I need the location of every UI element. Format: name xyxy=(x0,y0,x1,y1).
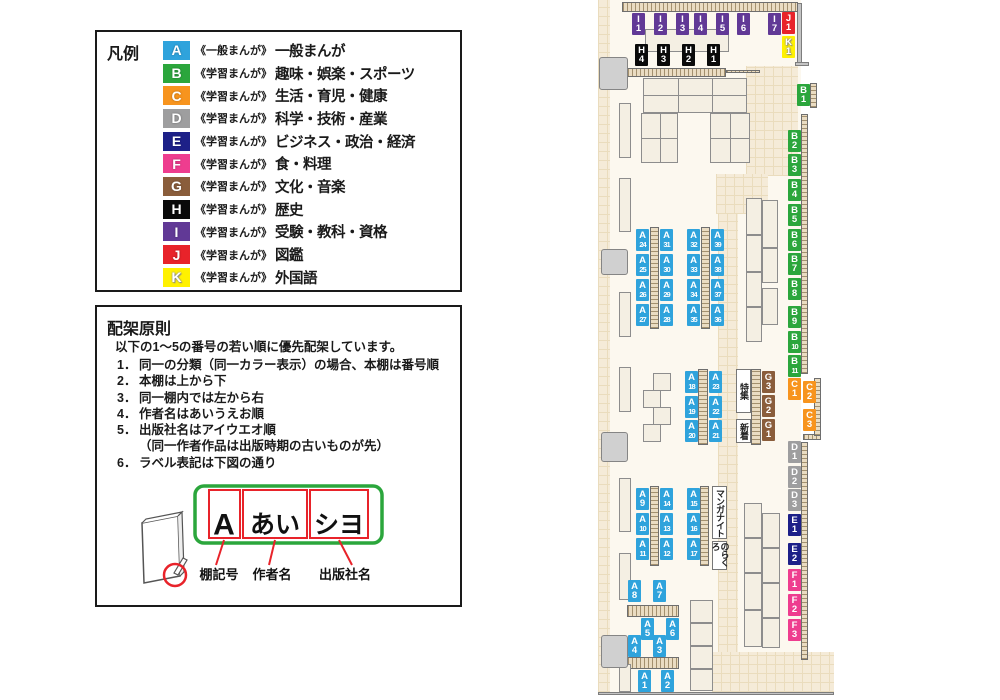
shelf-number: 4 xyxy=(698,24,703,34)
shelf-label-A27: A27 xyxy=(636,304,649,326)
shelf-letter: A xyxy=(688,398,695,408)
shelf-label-A11: A11 xyxy=(636,538,649,560)
shelf-label-H3: H3 xyxy=(657,44,670,66)
shelf-label-J1: J1 xyxy=(782,12,795,34)
shelf-label-D2: D2 xyxy=(788,466,801,488)
map-fixture-tile-1 xyxy=(598,0,610,692)
shelf-label-B9: B9 xyxy=(788,306,801,328)
shelf-label-H1: H1 xyxy=(707,44,720,66)
shelf-letter: A xyxy=(690,231,697,241)
shelf-number: 7 xyxy=(657,591,662,601)
shelf-number: 2 xyxy=(807,392,812,402)
shelf-number: 3 xyxy=(661,55,666,65)
shelf-letter: A xyxy=(663,281,670,291)
map-fixture-block-66 xyxy=(690,600,713,623)
shelf-number: 2 xyxy=(665,681,670,691)
shelf-label-A21: A21 xyxy=(709,420,722,442)
shelf-number: 3 xyxy=(807,420,812,430)
map-fixture-pillar-45 xyxy=(601,432,628,462)
shelf-label-A35: A35 xyxy=(687,304,700,326)
shelf-number: 5 xyxy=(792,215,797,225)
shelf-number: 3 xyxy=(766,382,771,392)
map-fixture-block-54 xyxy=(653,373,671,391)
map-fixture-block-47 xyxy=(746,198,762,235)
shelf-label-D1: D1 xyxy=(788,441,801,463)
shelf-label-A19: A19 xyxy=(685,396,698,418)
map-note-1: 新着 xyxy=(736,419,751,443)
map-fixture-wall-7 xyxy=(795,62,809,66)
shelf-label-A22: A22 xyxy=(709,396,722,418)
map-fixture-block-68 xyxy=(690,646,713,669)
shelf-number: 16 xyxy=(690,524,696,534)
map-fixture-tile-5 xyxy=(712,652,834,692)
shelf-letter: B xyxy=(791,333,798,343)
shelf-label-B7: B7 xyxy=(788,253,801,275)
map-fixture-block-50 xyxy=(746,307,762,342)
shelf-number: 23 xyxy=(712,382,718,392)
map-fixture-strip-h-14 xyxy=(627,657,679,669)
shelf-number: 3 xyxy=(792,630,797,640)
map-fixture-pillar-43 xyxy=(599,57,628,90)
shelf-number: 7 xyxy=(792,264,797,274)
shelf-letter: A xyxy=(690,281,697,291)
shelf-number: 3 xyxy=(657,646,662,656)
shelf-label-I2: I2 xyxy=(654,13,667,35)
shelf-label-A23: A23 xyxy=(709,371,722,393)
map-fixture-strip-v-20 xyxy=(701,227,710,329)
shelf-number: 34 xyxy=(690,290,696,300)
shelf-letter: A xyxy=(663,515,670,525)
map-fixture-block-53 xyxy=(762,288,778,325)
shelf-letter: A xyxy=(712,398,719,408)
shelf-label-A13: A13 xyxy=(660,513,673,535)
shelf-label-A25: A25 xyxy=(636,254,649,276)
shelf-letter: A xyxy=(688,373,695,383)
shelf-number: 38 xyxy=(714,265,720,275)
shelf-label-A39: A39 xyxy=(711,229,724,251)
map-fixture-block-40 xyxy=(619,478,631,532)
map-fixture-divider-31 xyxy=(643,95,747,96)
shelf-letter: A xyxy=(690,515,697,525)
map-note-0: 特集 xyxy=(736,369,751,413)
shelf-number: 15 xyxy=(690,499,696,509)
shelf-number: 33 xyxy=(690,265,696,275)
shelf-number: 2 xyxy=(766,406,771,416)
map-fixture-strip-v-19 xyxy=(650,227,659,329)
shelf-label-A15: A15 xyxy=(687,488,700,510)
shelf-label-A10: A10 xyxy=(636,513,649,535)
shelf-label-G3: G3 xyxy=(762,371,775,393)
shelf-label-A29: A29 xyxy=(660,279,673,301)
shelf-label-A1: A1 xyxy=(638,670,651,692)
shelf-number: 1 xyxy=(642,681,647,691)
shelf-number: 2 xyxy=(792,477,797,487)
shelf-label-A28: A28 xyxy=(660,304,673,326)
map-fixture-wall-6 xyxy=(797,3,802,65)
shelf-label-I7: I7 xyxy=(768,13,781,35)
shelf-label-A24: A24 xyxy=(636,229,649,251)
shelf-label-F3: F3 xyxy=(788,619,801,641)
shelf-label-G1: G1 xyxy=(762,419,775,441)
shelf-number: 6 xyxy=(792,240,797,250)
shelf-label-A9: A9 xyxy=(636,488,649,510)
shelf-label-A7: A7 xyxy=(653,580,666,602)
map-fixture-strip-v-17 xyxy=(801,442,808,660)
map-fixture-block-58 xyxy=(744,503,762,538)
map-fixture-block-55 xyxy=(643,390,661,408)
shelf-letter: A xyxy=(714,231,721,241)
shelf-label-H4: H4 xyxy=(635,44,648,66)
shelf-label-C2: C2 xyxy=(803,381,816,403)
shelf-label-A33: A33 xyxy=(687,254,700,276)
shelf-label-B10: B10 xyxy=(788,331,801,353)
shelf-label-B11: B11 xyxy=(788,355,801,377)
shelf-letter: A xyxy=(663,306,670,316)
map-fixture-block-69 xyxy=(690,669,713,691)
shelf-number: 19 xyxy=(688,407,694,417)
shelf-number: 13 xyxy=(663,524,669,534)
shelf-letter: A xyxy=(714,256,721,266)
map-fixture-block-64 xyxy=(762,583,780,618)
shelf-label-I1: I1 xyxy=(632,13,645,35)
shelf-number: 22 xyxy=(712,407,718,417)
store-floor-guide: 凡例 A《一般まんが》一般まんがB《学習まんが》趣味・娯楽・スポーツC《学習まん… xyxy=(0,0,1000,700)
map-fixture-strip-v-18 xyxy=(810,83,817,108)
shelf-number: 31 xyxy=(663,240,669,250)
shelf-label-A37: A37 xyxy=(711,279,724,301)
shelf-number: 9 xyxy=(792,317,797,327)
shelf-label-K1: K1 xyxy=(782,36,795,58)
shelf-label-E1: E1 xyxy=(788,514,801,536)
shelf-label-A38: A38 xyxy=(711,254,724,276)
shelf-letter: A xyxy=(714,281,721,291)
shelf-number: 8 xyxy=(792,289,797,299)
shelf-number: 1 xyxy=(786,23,791,33)
shelf-letter: A xyxy=(690,306,697,316)
shelf-number: 14 xyxy=(663,499,669,509)
shelf-number: 18 xyxy=(688,382,694,392)
shelf-number: 3 xyxy=(792,500,797,510)
map-fixture-divider-33 xyxy=(641,138,678,139)
shelf-label-A12: A12 xyxy=(660,538,673,560)
shelf-number: 4 xyxy=(632,646,637,656)
shelf-number: 7 xyxy=(772,24,777,34)
shelf-label-A14: A14 xyxy=(660,488,673,510)
map-fixture-block-52 xyxy=(762,248,778,283)
shelf-label-B6: B6 xyxy=(788,229,801,251)
map-fixture-block-38 xyxy=(619,292,631,337)
shelf-number: 21 xyxy=(712,431,718,441)
map-fixture-strip-v-24 xyxy=(700,486,709,566)
shelf-label-I3: I3 xyxy=(676,13,689,35)
map-fixture-block-49 xyxy=(746,272,762,307)
shelf-label-B2: B2 xyxy=(788,130,801,152)
map-fixture-strip-v-22 xyxy=(751,369,761,445)
shelf-label-A34: A34 xyxy=(687,279,700,301)
map-fixture-block-62 xyxy=(762,513,780,548)
shelf-number: 29 xyxy=(663,290,669,300)
shelf-label-E2: E2 xyxy=(788,543,801,565)
shelf-number: 5 xyxy=(645,629,650,639)
shelf-number: 11 xyxy=(640,549,646,559)
shelf-number: 36 xyxy=(714,315,720,325)
shelf-letter: A xyxy=(714,306,721,316)
shelf-label-A2: A2 xyxy=(661,670,674,692)
shelf-number: 32 xyxy=(690,240,696,250)
shelf-letter: A xyxy=(663,540,670,550)
shelf-label-I4: I4 xyxy=(694,13,707,35)
shelf-label-F1: F1 xyxy=(788,569,801,591)
shelf-label-A4: A4 xyxy=(628,635,641,657)
shelf-number: 3 xyxy=(680,24,685,34)
shelf-label-I5: I5 xyxy=(716,13,729,35)
shelf-number: 1 xyxy=(801,95,806,105)
map-fixture-strip-v-21 xyxy=(698,369,708,445)
shelf-label-F2: F2 xyxy=(788,594,801,616)
shelf-label-A26: A26 xyxy=(636,279,649,301)
map-note-2: マンガナイト xyxy=(712,486,727,539)
shelf-label-B3: B3 xyxy=(788,154,801,176)
shelf-letter: B xyxy=(791,357,798,367)
map-fixture-block-42 xyxy=(619,664,631,692)
map-fixture-block-39 xyxy=(619,367,631,412)
map-fixture-block-60 xyxy=(744,573,762,610)
shelf-letter: A xyxy=(663,256,670,266)
map-fixture-block-63 xyxy=(762,548,780,583)
shelf-letter: A xyxy=(639,281,646,291)
shelf-number: 4 xyxy=(639,55,644,65)
shelf-letter: A xyxy=(712,373,719,383)
shelf-number: 11 xyxy=(792,366,798,376)
map-fixture-strip-h-11 xyxy=(726,70,760,73)
floor-map: I1I2I3I4I5I6I7J1K1H4H3H2H1B1B2B3B4B5B6B7… xyxy=(0,0,1000,700)
shelf-number: 1 xyxy=(766,430,771,440)
shelf-label-A31: A31 xyxy=(660,229,673,251)
shelf-letter: A xyxy=(639,540,646,550)
shelf-label-A6: A6 xyxy=(666,618,679,640)
shelf-number: 3 xyxy=(792,165,797,175)
map-fixture-pillar-46 xyxy=(601,635,628,668)
shelf-label-I6: I6 xyxy=(737,13,750,35)
shelf-letter: A xyxy=(639,256,646,266)
shelf-number: 17 xyxy=(690,549,696,559)
shelf-letter: A xyxy=(639,515,646,525)
shelf-number: 35 xyxy=(690,315,696,325)
shelf-label-C1: C1 xyxy=(788,378,801,400)
shelf-number: 27 xyxy=(639,315,645,325)
shelf-number: 2 xyxy=(658,24,663,34)
shelf-number: 1 xyxy=(792,452,797,462)
shelf-number: 10 xyxy=(791,342,797,352)
shelf-number: 2 xyxy=(792,605,797,615)
shelf-label-A17: A17 xyxy=(687,538,700,560)
shelf-number: 28 xyxy=(663,315,669,325)
shelf-label-B8: B8 xyxy=(788,278,801,300)
map-fixture-block-67 xyxy=(690,623,713,646)
shelf-letter: A xyxy=(690,540,697,550)
shelf-number: 4 xyxy=(792,190,797,200)
shelf-letter: A xyxy=(663,231,670,241)
shelf-label-A30: A30 xyxy=(660,254,673,276)
map-fixture-strip-h-9 xyxy=(622,2,798,12)
shelf-letter: A xyxy=(690,490,697,500)
shelf-letter: A xyxy=(688,422,695,432)
shelf-number: 30 xyxy=(663,265,669,275)
shelf-number: 5 xyxy=(720,24,725,34)
shelf-number: 1 xyxy=(711,55,716,65)
map-fixture-block-48 xyxy=(746,235,762,272)
shelf-number: 2 xyxy=(792,141,797,151)
map-fixture-divider-35 xyxy=(710,138,750,139)
shelf-label-A16: A16 xyxy=(687,513,700,535)
shelf-label-B5: B5 xyxy=(788,204,801,226)
shelf-number: 8 xyxy=(632,591,637,601)
map-fixture-pillar-44 xyxy=(601,249,628,275)
map-fixture-block-57 xyxy=(643,424,661,442)
shelf-number: 6 xyxy=(670,629,675,639)
shelf-label-A8: A8 xyxy=(628,580,641,602)
shelf-letter: A xyxy=(690,256,697,266)
map-fixture-block-61 xyxy=(744,610,762,647)
shelf-number: 20 xyxy=(688,431,694,441)
shelf-letter: A xyxy=(639,306,646,316)
shelf-number: 9 xyxy=(640,499,645,509)
map-fixture-block-51 xyxy=(762,200,778,248)
map-fixture-block-36 xyxy=(619,103,631,158)
map-fixture-strip-h-10 xyxy=(627,68,726,77)
shelf-label-C3: C3 xyxy=(803,409,816,431)
map-fixture-block-56 xyxy=(653,407,671,425)
shelf-number: 37 xyxy=(714,290,720,300)
shelf-number: 26 xyxy=(639,290,645,300)
shelf-number: 1 xyxy=(786,47,791,57)
shelf-number: 2 xyxy=(792,554,797,564)
map-fixture-strip-v-15 xyxy=(801,114,808,374)
shelf-label-G2: G2 xyxy=(762,395,775,417)
shelf-number: 6 xyxy=(741,24,746,34)
shelf-label-A20: A20 xyxy=(685,420,698,442)
shelf-number: 1 xyxy=(636,24,641,34)
shelf-label-A18: A18 xyxy=(685,371,698,393)
map-fixture-strip-h-13 xyxy=(627,605,679,617)
map-fixture-block-37 xyxy=(619,178,631,232)
shelf-number: 24 xyxy=(639,240,645,250)
map-fixture-wall-8 xyxy=(598,692,834,695)
shelf-label-A3: A3 xyxy=(653,635,666,657)
shelf-number: 1 xyxy=(792,580,797,590)
shelf-label-B1: B1 xyxy=(797,84,810,106)
shelf-number: 39 xyxy=(714,240,720,250)
shelf-number: 12 xyxy=(663,549,669,559)
shelf-number: 2 xyxy=(686,55,691,65)
map-fixture-block-59 xyxy=(744,538,762,573)
shelf-letter: A xyxy=(639,231,646,241)
shelf-number: 1 xyxy=(792,389,797,399)
shelf-label-H2: H2 xyxy=(682,44,695,66)
shelf-number: 25 xyxy=(639,265,645,275)
shelf-letter: A xyxy=(663,490,670,500)
map-note-3: のらくろ xyxy=(712,541,727,570)
shelf-letter: A xyxy=(712,422,719,432)
map-fixture-strip-v-23 xyxy=(650,486,659,566)
shelf-number: 10 xyxy=(639,524,645,534)
shelf-label-A32: A32 xyxy=(687,229,700,251)
map-fixture-block-65 xyxy=(762,618,780,648)
shelf-label-A36: A36 xyxy=(711,304,724,326)
shelf-label-D3: D3 xyxy=(788,489,801,511)
shelf-label-B4: B4 xyxy=(788,179,801,201)
shelf-number: 1 xyxy=(792,525,797,535)
